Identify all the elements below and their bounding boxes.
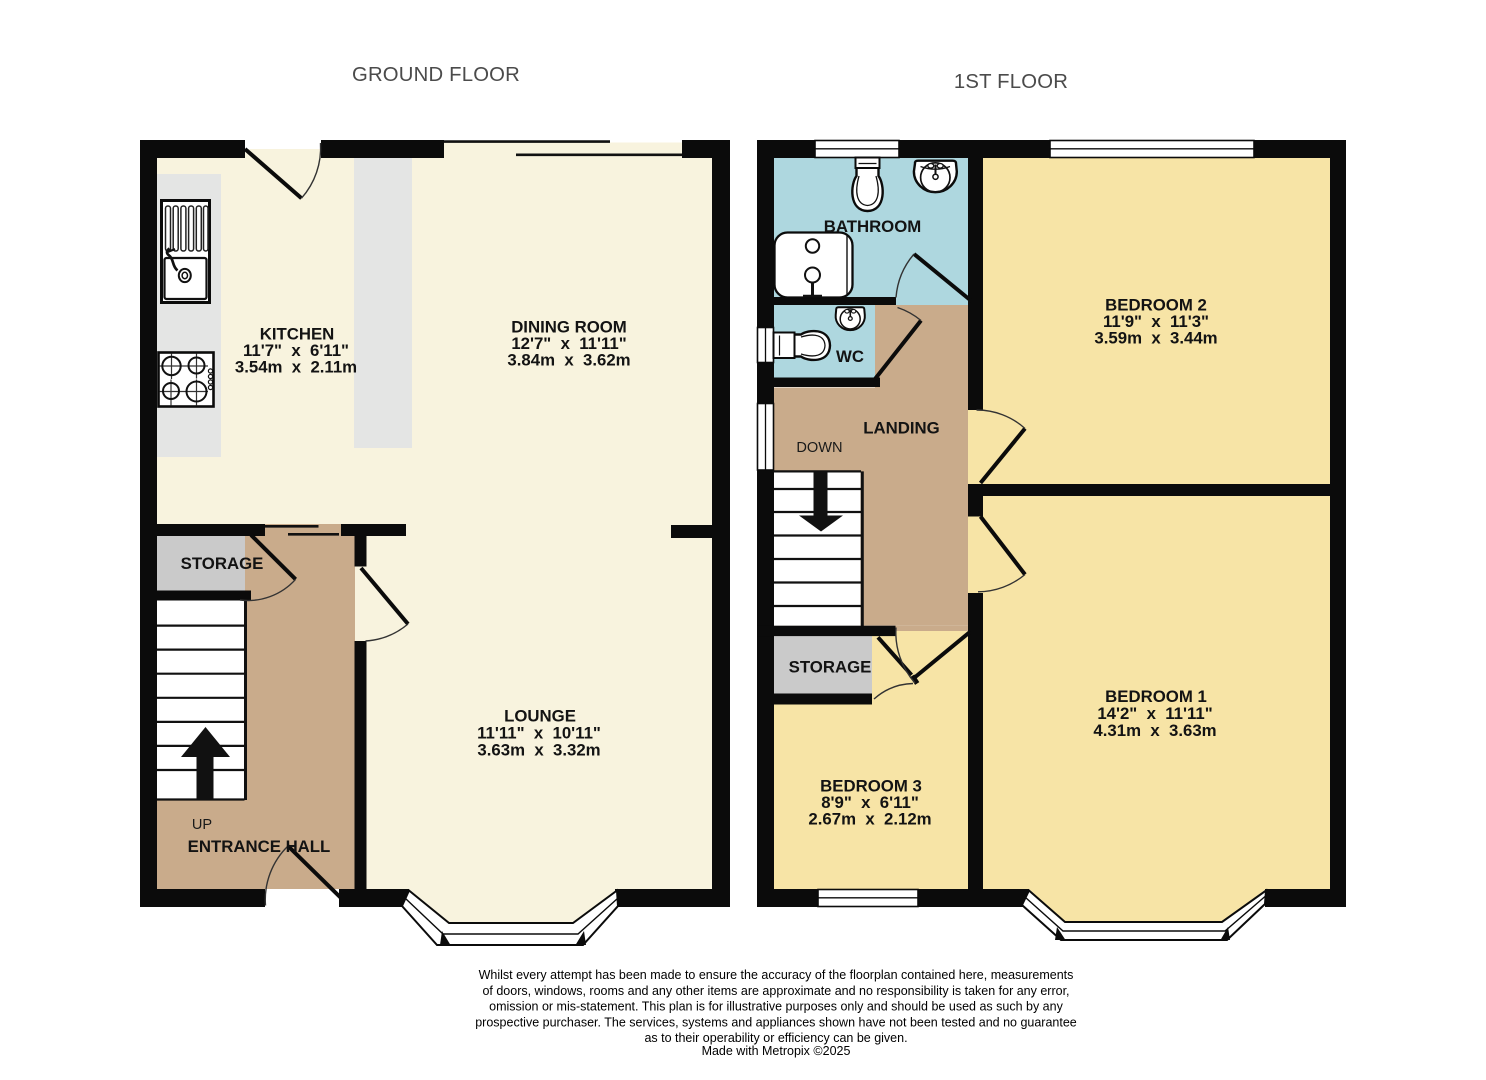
svg-text:4.31m x 3.63m: 4.31m x 3.63m — [1093, 721, 1216, 740]
svg-text:prospective purchaser. The ser: prospective purchaser. The services, sys… — [475, 1015, 1077, 1029]
svg-text:3.63m x 3.32m: 3.63m x 3.32m — [477, 741, 600, 760]
svg-text:ENTRANCE HALL: ENTRANCE HALL — [188, 837, 331, 856]
svg-text:3.59m x 3.44m: 3.59m x 3.44m — [1094, 329, 1217, 348]
svg-text:DOWN: DOWN — [796, 440, 842, 456]
svg-text:3.54m x 2.11m: 3.54m x 2.11m — [235, 358, 357, 377]
svg-text:BATHROOM: BATHROOM — [824, 217, 922, 236]
svg-text:Whilst every attempt has been: Whilst every attempt has been made to en… — [479, 968, 1074, 982]
svg-text:Made with Metropix ©2025: Made with Metropix ©2025 — [702, 1044, 851, 1058]
svg-text:1ST FLOOR: 1ST FLOOR — [954, 71, 1068, 93]
svg-text:UP: UP — [192, 817, 212, 833]
svg-text:STORAGE: STORAGE — [181, 554, 264, 573]
svg-text:2.67m x 2.12m: 2.67m x 2.12m — [808, 810, 931, 829]
svg-text:3.84m x 3.62m: 3.84m x 3.62m — [507, 351, 630, 370]
svg-text:omission or mis-statement. Thi: omission or mis-statement. This plan is … — [489, 1000, 1063, 1014]
svg-text:of doors, windows, rooms and a: of doors, windows, rooms and any other i… — [482, 984, 1069, 998]
svg-text:GROUND FLOOR: GROUND FLOOR — [352, 64, 520, 86]
svg-text:WC: WC — [836, 347, 864, 366]
svg-text:STORAGE: STORAGE — [789, 658, 872, 677]
svg-text:LANDING: LANDING — [863, 419, 939, 438]
